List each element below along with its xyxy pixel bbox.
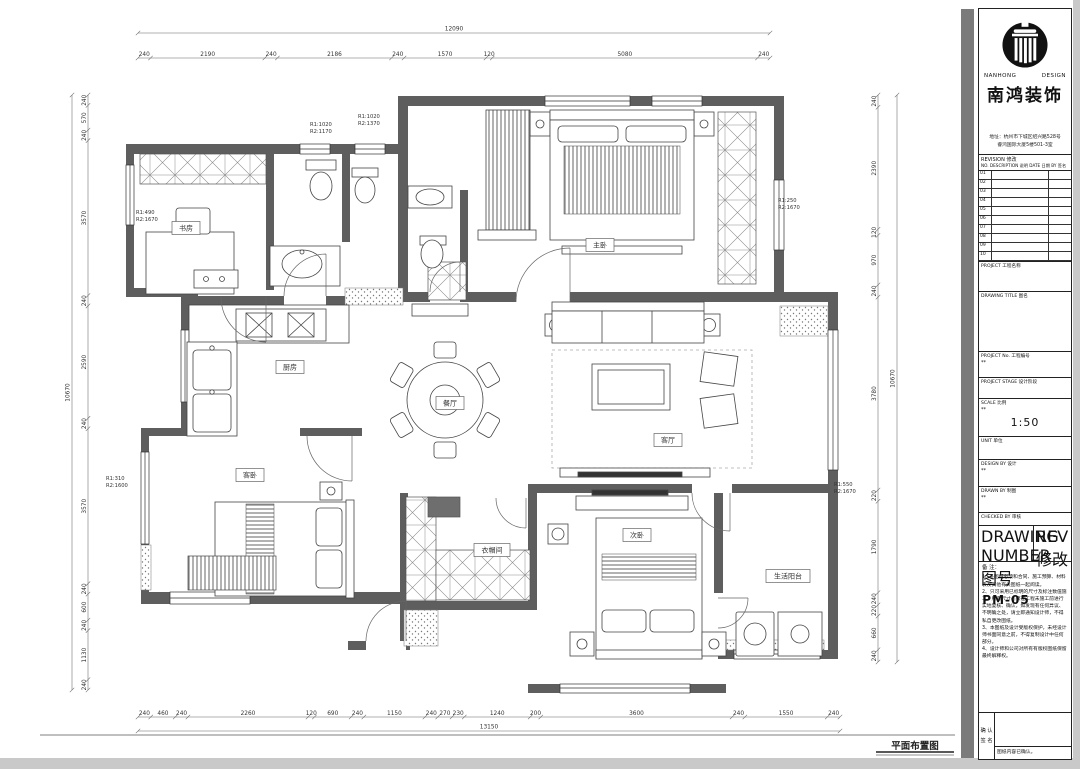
- tv: [578, 472, 682, 477]
- field-dtitle: DRAWING TITLE 图名: [979, 291, 1071, 351]
- svg-text:240: 240: [352, 711, 363, 717]
- brand-en-left: NANHONG: [984, 73, 1016, 79]
- svg-text:200: 200: [530, 711, 541, 717]
- bath-3: [408, 186, 452, 268]
- sink-basin: [193, 350, 231, 390]
- door-closet: [496, 498, 526, 528]
- closet-wardrobe-bottom: [436, 550, 530, 600]
- svg-text:3570: 3570: [82, 210, 88, 225]
- confirm-block: 确 认 签 名 图纸内容已确认。: [979, 712, 1071, 759]
- svg-text:570: 570: [82, 112, 88, 123]
- brand-en-right: DESIGN: [1042, 73, 1066, 79]
- notes-block: 备 注： 1、※图纸必须和合同、施工预算、材料表及其他有关图纸一起阅读。2、只可…: [979, 561, 1071, 712]
- room-label-living: 客厅: [654, 434, 682, 447]
- window-note-w6: R1:550R2:1670: [834, 482, 856, 495]
- field-design: DESIGN BY 设计**: [979, 459, 1071, 486]
- svg-text:240: 240: [176, 711, 187, 717]
- field-value: **: [981, 468, 1069, 474]
- room-label-guest: 客卧: [236, 469, 264, 482]
- window-bath-1: [300, 144, 330, 154]
- svg-text:生活阳台: 生活阳台: [774, 572, 802, 581]
- title-block: NANHONG DESIGN 南鸿装饰 地址：杭州市下城区绍兴路528号 睿鸿国…: [978, 8, 1072, 760]
- svg-text:1150: 1150: [387, 711, 402, 717]
- svg-text:240: 240: [733, 711, 744, 717]
- company-address: 地址：杭州市下城区绍兴路528号 睿鸿国际大厦5楼501-3室: [979, 134, 1071, 150]
- svg-text:970: 970: [872, 254, 878, 265]
- sheet-fold-bar: [961, 9, 974, 759]
- svg-text:10670: 10670: [66, 383, 72, 402]
- note-item: 4、设计师和公司对所有有版权图纸保留最终解释权。: [982, 646, 1068, 660]
- window-note-w2: R1:1020R2:1370: [358, 114, 380, 127]
- revision-row: 03: [979, 189, 1071, 198]
- dresser: [576, 496, 688, 510]
- window-guest: [141, 452, 149, 544]
- kitchen-counter: [187, 305, 349, 436]
- svg-text:厨房: 厨房: [283, 363, 297, 372]
- company-name: 南鸿装饰: [979, 81, 1071, 106]
- basin: [416, 189, 444, 205]
- svg-text:1550: 1550: [779, 711, 794, 717]
- guest-bed: [188, 482, 354, 598]
- room-label-study: 书房: [172, 222, 200, 235]
- headboard: [346, 500, 354, 598]
- svg-text:餐厅: 餐厅: [443, 399, 457, 408]
- pillow: [316, 508, 342, 546]
- bath-2: [352, 168, 378, 203]
- svg-text:240: 240: [872, 650, 878, 661]
- window-note-w1: R1:1020R2:1170: [310, 122, 332, 135]
- svg-text:240: 240: [82, 130, 88, 141]
- svg-text:240: 240: [266, 52, 277, 58]
- study-desk: [146, 208, 238, 294]
- window-living: [828, 330, 838, 470]
- drawing-label-text: 平面布置图: [891, 740, 939, 752]
- field-checked: CHECKED BY 审核: [979, 512, 1071, 525]
- master-bed: [530, 110, 714, 254]
- svg-text:R2:1670: R2:1670: [136, 217, 158, 223]
- svg-text:1570: 1570: [438, 52, 453, 58]
- shower-base: [478, 230, 536, 240]
- revision-row: 04: [979, 198, 1071, 207]
- room-label-bed2: 次卧: [623, 529, 651, 542]
- revision-row: 08: [979, 234, 1071, 243]
- note-item: 1、※图纸必须和合同、施工预算、材料表及其他有关图纸一起阅读。: [982, 574, 1068, 588]
- field-label: PROJECT 工程名称: [981, 263, 1069, 269]
- drawing-number-box: DRAWING NUMBER 图号 PM-05 REV 修改: [979, 525, 1071, 561]
- svg-text:客卧: 客卧: [243, 471, 257, 480]
- svg-text:240: 240: [82, 583, 88, 594]
- svg-text:1130: 1130: [82, 647, 88, 662]
- room-label-balcony: 生活阳台: [766, 570, 810, 583]
- notes-title: 备 注：: [982, 564, 1068, 572]
- svg-text:240: 240: [82, 94, 88, 105]
- svg-text:240: 240: [139, 52, 150, 58]
- window-bath-2: [355, 144, 385, 154]
- room-label-master: 主卧: [586, 239, 614, 252]
- svg-text:120: 120: [306, 711, 317, 717]
- revision-row: 10: [979, 252, 1071, 261]
- svg-text:R2:1670: R2:1670: [778, 205, 800, 211]
- svg-text:3780: 3780: [872, 386, 878, 401]
- svg-text:240: 240: [426, 711, 437, 717]
- svg-text:2186: 2186: [327, 52, 342, 58]
- svg-text:240: 240: [828, 711, 839, 717]
- note-item: 2、只可采用已标明的尺寸及标注数值施工，所有尺寸必须在工程未施工前进行实地复核、…: [982, 589, 1068, 625]
- toilet-tank: [352, 168, 378, 177]
- room-label-kitchen: 厨房: [276, 361, 304, 374]
- bench: [562, 246, 682, 254]
- room-label-closet: 衣帽间: [474, 544, 510, 557]
- revision-row: 06: [979, 216, 1071, 225]
- drawing-label: 平面布置图: [876, 740, 954, 755]
- svg-text:220: 220: [872, 490, 878, 501]
- pillow: [316, 550, 342, 588]
- logo-icon: [999, 19, 1051, 71]
- coffee-table: [592, 364, 670, 410]
- field-drawn: DRAWN BY 制图**: [979, 486, 1071, 512]
- revision-row: 01: [979, 171, 1071, 180]
- page-right-edge: [1073, 0, 1080, 769]
- svg-text:5080: 5080: [617, 52, 632, 58]
- svg-text:R2:1170: R2:1170: [310, 129, 332, 135]
- field-value: 1:50: [981, 416, 1069, 429]
- svg-text:R2:1370: R2:1370: [358, 121, 380, 127]
- room-label-dining: 餐厅: [436, 397, 464, 410]
- svg-text:R2:1600: R2:1600: [106, 483, 128, 489]
- svg-text:2260: 2260: [241, 711, 256, 717]
- svg-text:690: 690: [327, 711, 338, 717]
- pillow: [602, 610, 646, 632]
- svg-text:240: 240: [139, 711, 150, 717]
- dining-table: [389, 304, 500, 458]
- svg-text:2190: 2190: [200, 52, 215, 58]
- toilet-bowl: [421, 240, 443, 268]
- confirm-label-1: 确 认: [980, 726, 992, 736]
- svg-text:13150: 13150: [480, 725, 499, 731]
- confirm-note: 图纸内容已确认。: [995, 746, 1071, 759]
- shower-column: [486, 110, 530, 230]
- field-value: **: [981, 495, 1069, 501]
- field-label: PROJECT STAGE 设计阶段: [981, 379, 1069, 385]
- blanket: [564, 146, 680, 214]
- field-project: PROJECT 工程名称: [979, 261, 1071, 291]
- svg-text:R2:1670: R2:1670: [834, 489, 856, 495]
- revision-row: 09: [979, 243, 1071, 252]
- field-pstage: PROJECT STAGE 设计阶段: [979, 377, 1071, 398]
- svg-text:2390: 2390: [872, 161, 878, 176]
- svg-text:600: 600: [82, 601, 88, 612]
- tv: [592, 490, 668, 495]
- svg-text:主卧: 主卧: [593, 241, 607, 250]
- svg-text:客厅: 客厅: [661, 436, 675, 445]
- field-label: CHECKED BY 审核: [981, 514, 1069, 520]
- svg-text:240: 240: [758, 52, 769, 58]
- window-note-w4: R1:250R2:1670: [778, 198, 800, 211]
- field-label: SCALE 比例: [981, 400, 1069, 406]
- svg-text:R1:490: R1:490: [136, 210, 155, 216]
- svg-text:460: 460: [157, 711, 168, 717]
- balcony-units: [736, 612, 822, 656]
- svg-text:120: 120: [872, 226, 878, 237]
- field-value: **: [981, 360, 1069, 366]
- svg-text:270: 270: [439, 711, 450, 717]
- svg-text:10670: 10670: [891, 369, 897, 388]
- pillow: [558, 126, 618, 142]
- toilet-tank: [306, 160, 336, 170]
- armchair: [700, 394, 738, 428]
- svg-text:次卧: 次卧: [630, 531, 644, 540]
- svg-text:R1:310: R1:310: [106, 476, 125, 482]
- svg-text:12090: 12090: [445, 27, 464, 33]
- svg-text:3570: 3570: [82, 499, 88, 514]
- window-note-w5: R1:310R2:1600: [106, 476, 128, 489]
- toilet-bowl: [355, 177, 375, 203]
- sofa: [552, 311, 704, 343]
- note-item: 3、本图纸及设计受版权保护，未经设计师书面同意之前，不得复制设计中任何部分。: [982, 625, 1068, 647]
- svg-text:1240: 1240: [490, 711, 505, 717]
- svg-text:120: 120: [484, 52, 495, 58]
- field-value2: **: [981, 407, 1069, 413]
- svg-text:240: 240: [872, 285, 878, 296]
- armchair: [700, 352, 738, 386]
- blanket: [602, 554, 696, 580]
- svg-text:240: 240: [82, 619, 88, 630]
- svg-text:2590: 2590: [82, 354, 88, 369]
- window-master-2: [652, 96, 702, 106]
- svg-text:220: 220: [872, 605, 878, 616]
- study-cabinet: [140, 154, 266, 184]
- bath-1: [270, 160, 340, 286]
- svg-text:240: 240: [872, 95, 878, 106]
- window-bed2: [560, 684, 690, 693]
- confirm-label-2: 签 名: [980, 736, 992, 746]
- closet-cabinet: [428, 497, 460, 517]
- field-label: PROJECT No. 工程编号: [981, 353, 1069, 359]
- toilet-bowl: [310, 172, 332, 200]
- svg-text:衣帽间: 衣帽间: [482, 546, 503, 555]
- field-scale: SCALE 比例**1:50: [979, 398, 1071, 436]
- sink-basin: [193, 394, 231, 432]
- floor-plan: 平面布置图 1209024021902402186240157012050802…: [0, 0, 960, 769]
- drawing-sheet: 平面布置图 1209024021902402186240157012050802…: [0, 0, 1080, 769]
- svg-text:R1:1020: R1:1020: [310, 122, 332, 128]
- field-label: DESIGN BY 设计: [981, 461, 1069, 467]
- field-label: UNIT 单位: [981, 438, 1069, 444]
- window-note-w3: R1:490R2:1670: [136, 210, 158, 223]
- pillow: [626, 126, 686, 142]
- window-master-side: [774, 180, 784, 250]
- svg-text:240: 240: [392, 52, 403, 58]
- svg-text:书房: 书房: [179, 224, 193, 233]
- company-logo: [979, 9, 1071, 71]
- svg-text:660: 660: [872, 627, 878, 638]
- revision-row: 07: [979, 225, 1071, 234]
- page-bottom-edge: [0, 758, 1080, 769]
- revision-row: 02: [979, 180, 1071, 189]
- revision-columns: NO. DESCRIPTION 说明 DATE 日期 BY 签名: [979, 163, 1071, 171]
- window-master-1: [545, 96, 630, 106]
- revision-title: REVISION 修改: [979, 155, 1071, 163]
- svg-text:R1:550: R1:550: [834, 482, 853, 488]
- svg-text:3600: 3600: [629, 711, 644, 717]
- door-guest: [307, 436, 352, 481]
- bench: [188, 556, 276, 590]
- window-study: [126, 165, 134, 225]
- pillow: [650, 610, 694, 632]
- sideboard: [412, 304, 468, 316]
- svg-text:R1:250: R1:250: [778, 198, 797, 204]
- svg-text:240: 240: [82, 418, 88, 429]
- address-line-1: 地址：杭州市下城区绍兴路528号: [979, 134, 1071, 142]
- headboard: [550, 110, 694, 120]
- sofa-back: [552, 302, 704, 311]
- master-wardrobe: [718, 112, 756, 284]
- headboard: [596, 650, 702, 659]
- svg-text:240: 240: [82, 295, 88, 306]
- svg-text:R1:1020: R1:1020: [358, 114, 380, 120]
- confirm-signature-area[interactable]: [995, 713, 1071, 746]
- svg-text:240: 240: [82, 679, 88, 690]
- svg-text:240: 240: [872, 593, 878, 604]
- address-line-2: 睿鸿国际大厦5楼501-3室: [979, 142, 1071, 150]
- svg-text:1790: 1790: [872, 539, 878, 554]
- field-label: DRAWN BY 制图: [981, 488, 1069, 494]
- svg-text:230: 230: [453, 711, 464, 717]
- field-unit: UNIT 单位: [979, 436, 1071, 459]
- brand-english: NANHONG DESIGN: [979, 71, 1071, 79]
- revision-table: REVISION 修改 NO. DESCRIPTION 说明 DATE 日期 B…: [979, 154, 1071, 261]
- living-room: [545, 302, 752, 477]
- field-pno: PROJECT No. 工程编号**: [979, 351, 1071, 377]
- field-label: DRAWING TITLE 图名: [981, 293, 1069, 299]
- revision-row: 05: [979, 207, 1071, 216]
